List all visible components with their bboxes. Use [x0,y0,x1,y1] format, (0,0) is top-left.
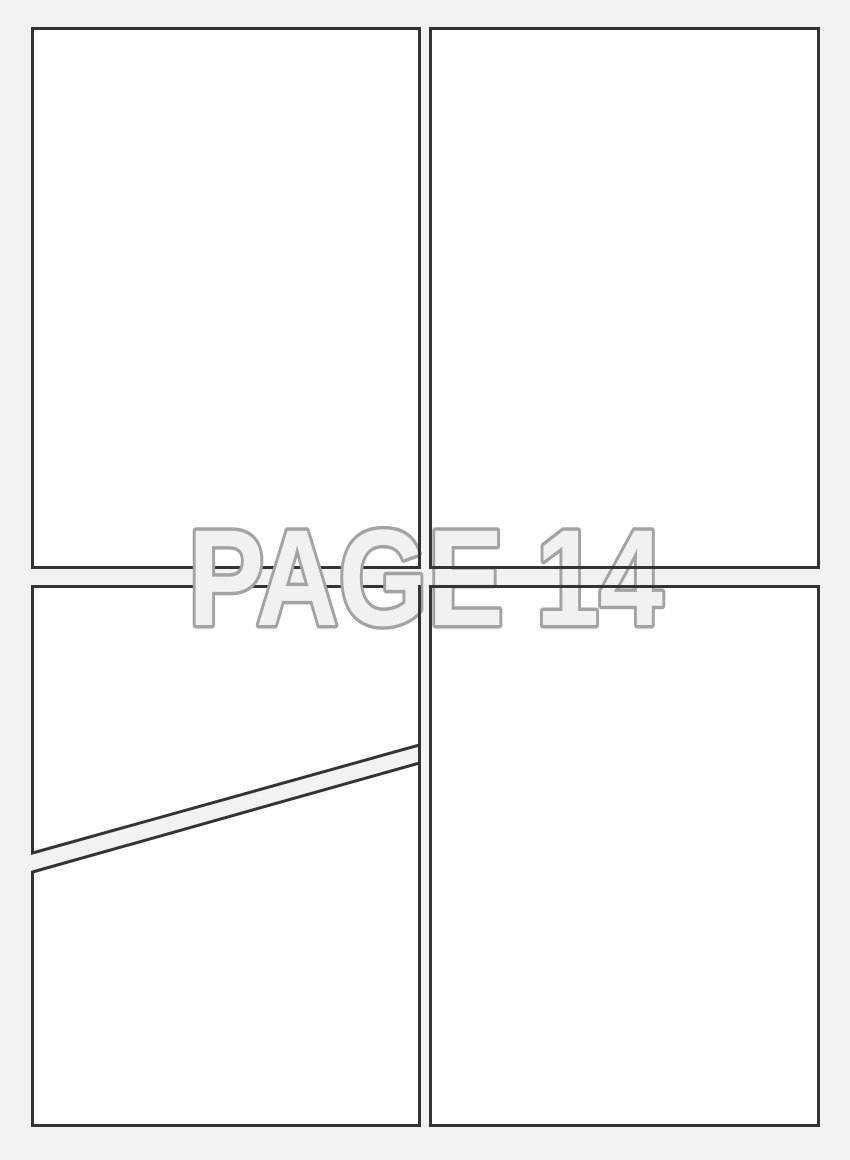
gutter-line-vertical-bottom-left [418,585,421,1127]
panel-top-left [31,27,421,569]
gutter-line-horizontal-right-upper [429,566,820,569]
panel-bottom-left-group [31,585,421,1127]
panel-bottom-right [429,585,820,1127]
comic-page-template: PAGE 14 [0,0,850,1160]
gutter-line-vertical-top-left [418,27,421,569]
panel-top-right [429,27,820,569]
gutter-line-horizontal-right-lower [429,585,820,588]
gutter-line-vertical-top-right [429,27,432,569]
gutter-line-vertical-bottom-right [429,585,432,1127]
